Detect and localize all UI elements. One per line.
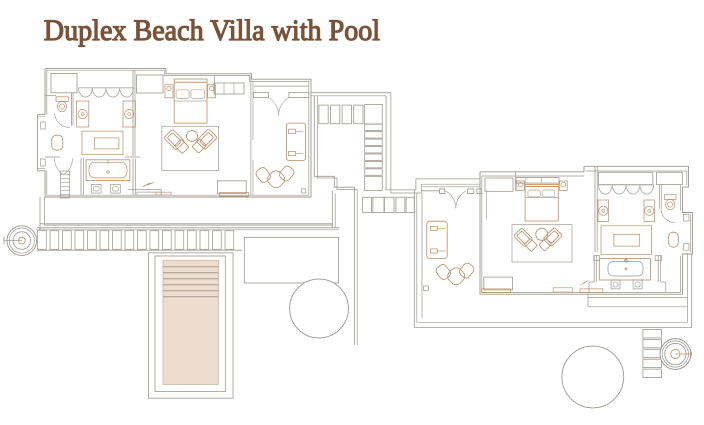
- svg-text:Duplex Beach Villa with Pool: Duplex Beach Villa with Pool: [44, 14, 380, 47]
